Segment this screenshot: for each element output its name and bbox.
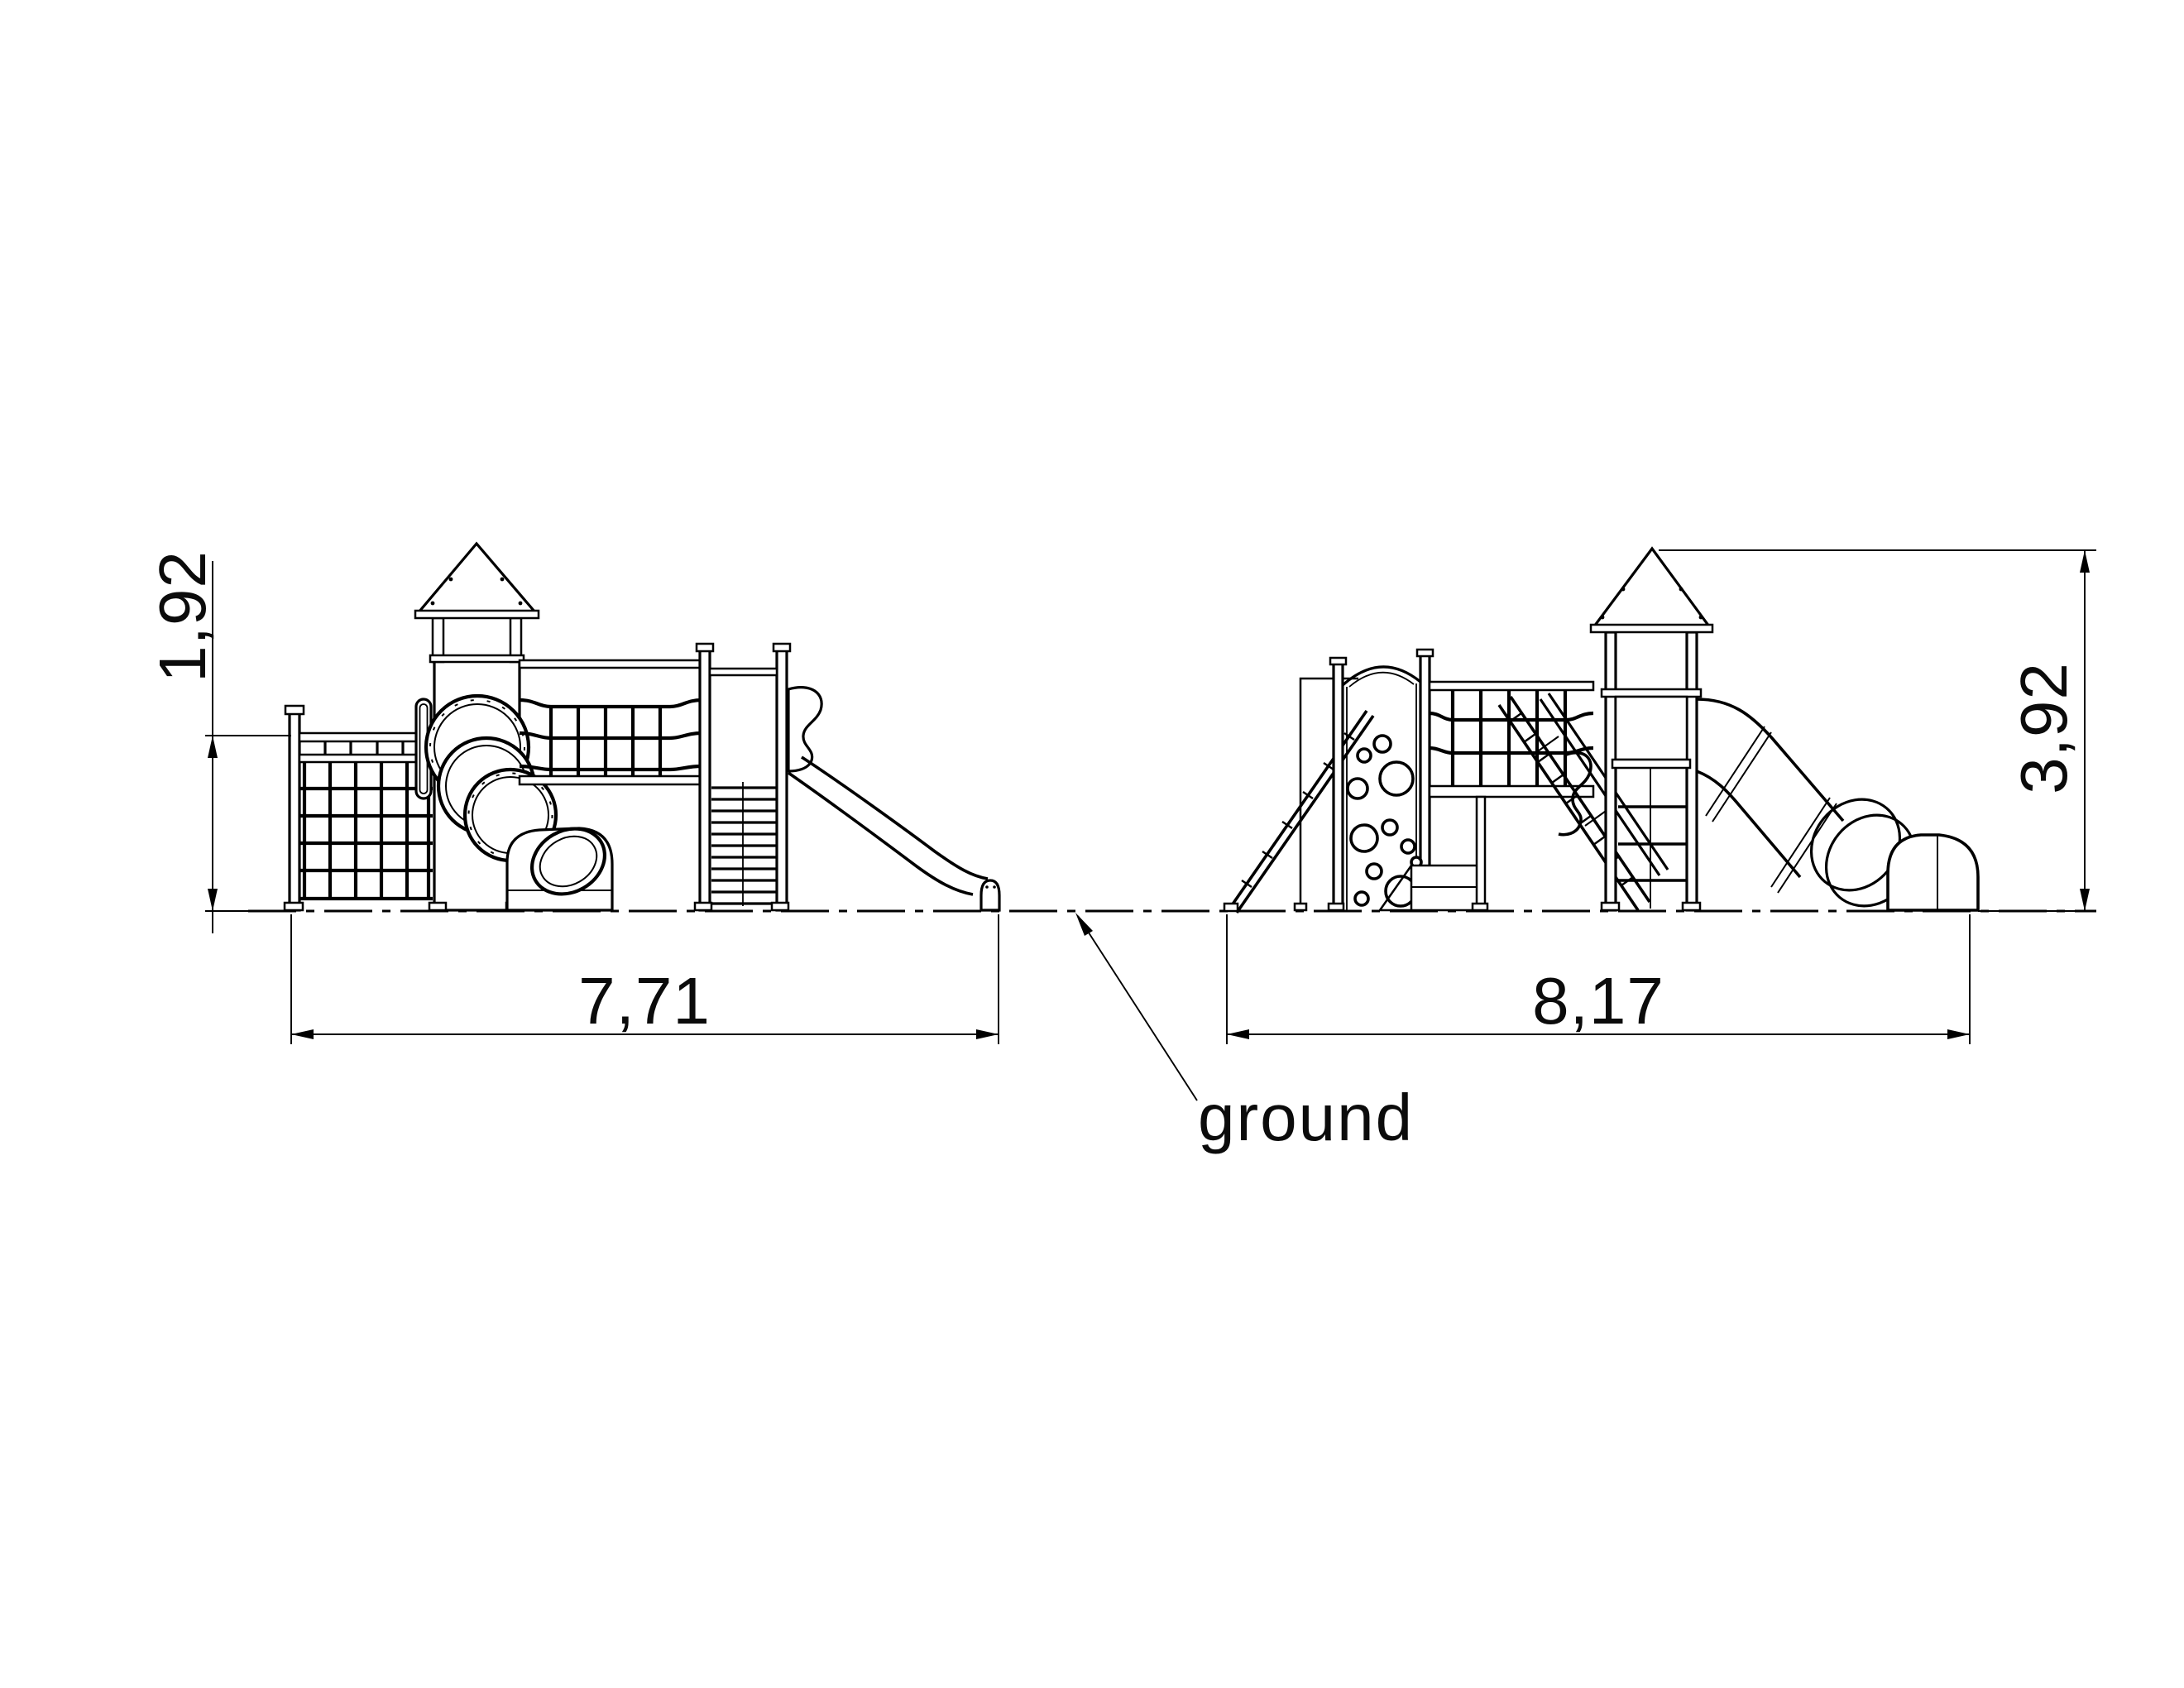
technical-drawing-page: 1,92 7,71 8,17 3,92 ground <box>0 0 2184 1688</box>
dim-label-8-17: 8,17 <box>1532 964 1664 1038</box>
dimension-right-height: 3,92 <box>1659 550 2096 911</box>
dim-label-7-71: 7,71 <box>578 964 711 1038</box>
dimension-right-width: 8,17 <box>1227 914 1970 1044</box>
panel-holes <box>1348 736 1421 906</box>
straight-slide <box>788 688 999 910</box>
climbing-ramp <box>1224 711 1373 913</box>
playground-elevation-drawing: 1,92 7,71 8,17 3,92 ground <box>0 0 2184 1688</box>
dim-label-3-92: 3,92 <box>2007 662 2081 794</box>
tube-slide <box>1697 699 1978 924</box>
dimension-left-width: 7,71 <box>291 914 999 1044</box>
left-elevation-view <box>285 544 999 910</box>
dim-label-1-92: 1,92 <box>146 550 219 683</box>
ladder <box>695 644 790 910</box>
climbing-net <box>285 706 433 910</box>
tower-right-view <box>1591 549 1712 910</box>
net-bridge-left-view <box>520 660 702 784</box>
dimension-left-height: 1,92 <box>146 550 291 933</box>
ground-label: ground <box>1198 1081 1414 1154</box>
right-elevation-view <box>1224 549 1978 924</box>
